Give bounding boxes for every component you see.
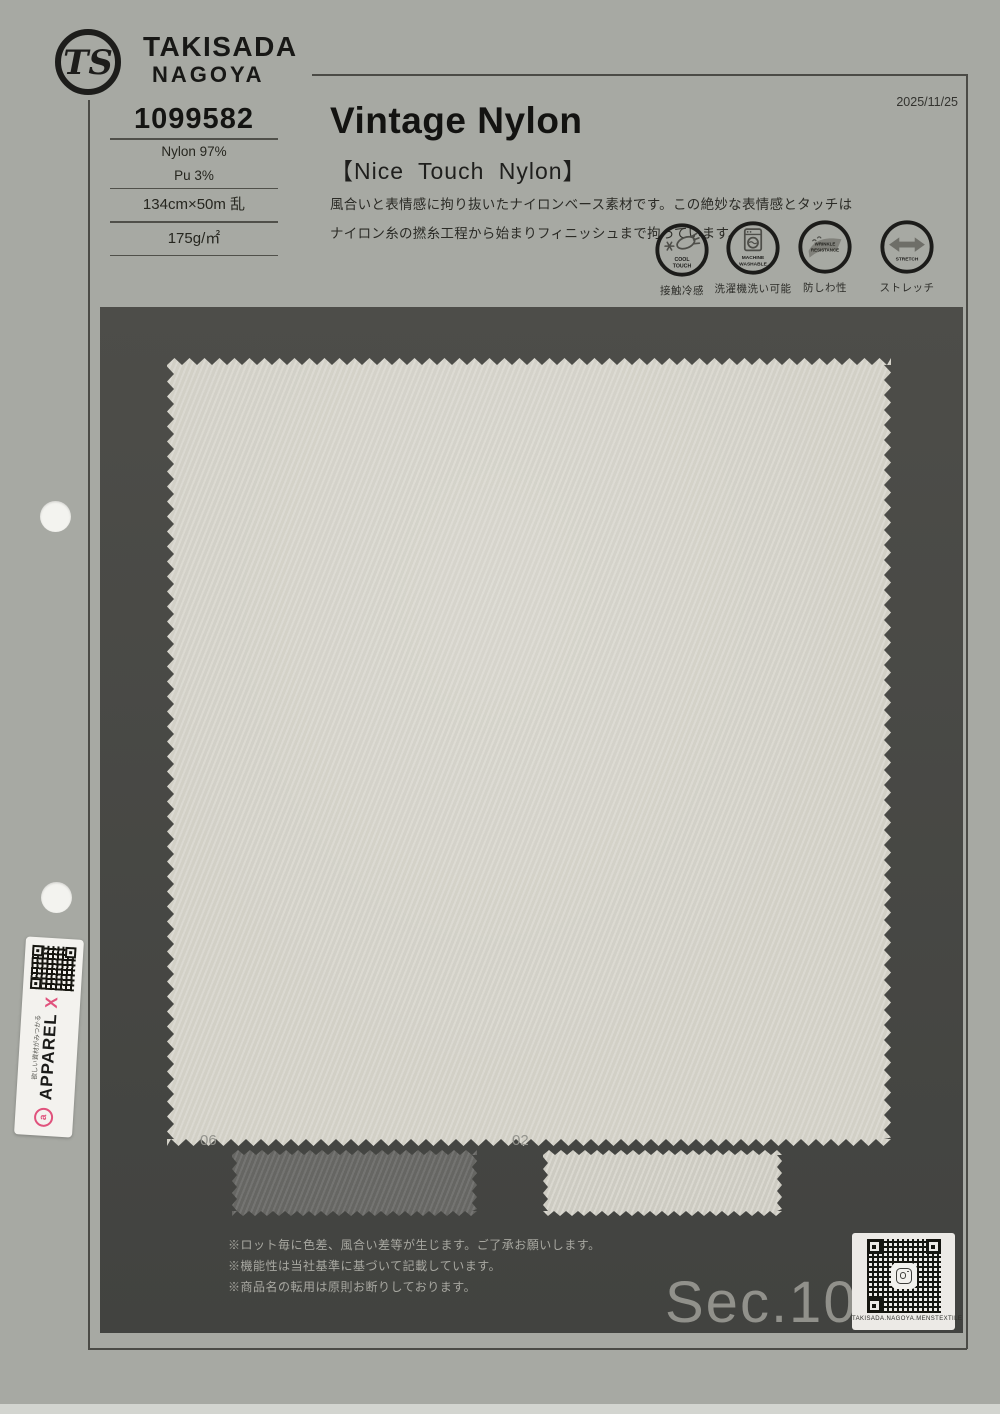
description-line-1: 風合いと表情感に拘り抜いたナイロンベース素材です。この絶妙な表情感とタッチは bbox=[330, 190, 852, 219]
composition-nylon: Nylon 97% bbox=[110, 140, 278, 164]
qr-finder-icon bbox=[65, 947, 77, 959]
qr-finder-icon bbox=[867, 1239, 882, 1254]
qr-finder-icon bbox=[30, 978, 42, 990]
product-info-column: 1099582 Nylon 97% Pu 3% 134cm×50m 乱 175g… bbox=[110, 100, 278, 256]
svg-text:RESISTANCE: RESISTANCE bbox=[811, 247, 839, 252]
note-line-1: ※ロット毎に色差、風合い差等が生じます。ご了承お願いします。 bbox=[228, 1235, 601, 1256]
left-border-line bbox=[88, 100, 90, 1349]
disclaimer-notes: ※ロット毎に色差、風合い差等が生じます。ご了承お願いします。 ※機能性は当社基準… bbox=[228, 1235, 601, 1298]
instagram-account-caption: TAKISADA.NAGOYA.MENSTEXTILE bbox=[852, 1316, 955, 1322]
brand-name-top: TAKISADA bbox=[143, 31, 298, 63]
sample-code-06: 06 bbox=[200, 1132, 217, 1149]
svg-text:WRINKLE: WRINKLE bbox=[815, 242, 836, 247]
svg-text:MACHINE: MACHINE bbox=[742, 255, 765, 261]
instagram-qr-box: TAKISADA.NAGOYA.MENSTEXTILE bbox=[852, 1233, 955, 1330]
apparelx-sticker: APPARELX 欲しい資材がみつかる a bbox=[14, 936, 84, 1137]
product-title: Vintage Nylon bbox=[330, 100, 583, 142]
qr-finder-icon bbox=[867, 1298, 882, 1313]
page-edge bbox=[0, 1404, 1000, 1414]
feature-stretch: STRETCH ストレッチ bbox=[862, 218, 952, 295]
fabric-spec-sheet: TS TAKISADA NAGOYA 1099582 Nylon 97% Pu … bbox=[0, 0, 1000, 1414]
note-line-2: ※機能性は当社基準に基づいて記載しています。 bbox=[228, 1256, 601, 1277]
composition-pu: Pu 3% bbox=[110, 164, 278, 188]
swatch-board: 06 02 ※ロット毎に色差、風合い差等が生じます。ご了承お願いします。 ※機能… bbox=[100, 307, 963, 1333]
fabric-sample-02 bbox=[543, 1150, 782, 1216]
top-border-line bbox=[312, 74, 967, 76]
fabric-sample-06 bbox=[232, 1150, 477, 1216]
feature-label-stretch: ストレッチ bbox=[862, 280, 952, 295]
qr-finder-icon bbox=[926, 1239, 941, 1254]
apparelx-qr-code bbox=[30, 945, 77, 992]
brand-name-bottom: NAGOYA bbox=[152, 62, 265, 88]
qr-finder-icon bbox=[32, 945, 44, 957]
instagram-qr-code bbox=[867, 1239, 941, 1313]
section-number: Sec.10 bbox=[665, 1269, 858, 1336]
product-number: 1099582 bbox=[110, 100, 278, 138]
rule-line bbox=[110, 255, 278, 257]
takisada-ts-logo-icon: TS bbox=[52, 26, 124, 103]
fabric-weight: 175g/㎡ bbox=[110, 223, 278, 255]
svg-text:WASHABLE: WASHABLE bbox=[739, 261, 767, 267]
width-length: 134cm×50m 乱 bbox=[110, 189, 278, 221]
note-line-3: ※商品名の転用は原則お断りしております。 bbox=[228, 1277, 601, 1298]
product-subtitle: 【Nice Touch Nylon】 bbox=[330, 152, 587, 186]
feature-label-wrinkle-resistance: 防しわ性 bbox=[780, 280, 870, 295]
punch-hole bbox=[41, 882, 72, 913]
svg-text:STRETCH: STRETCH bbox=[896, 257, 919, 263]
svg-text:TOUCH: TOUCH bbox=[673, 263, 692, 269]
apparelx-logo-icon: a bbox=[34, 1107, 54, 1127]
bottom-border-line bbox=[88, 1348, 967, 1350]
main-fabric-swatch bbox=[167, 358, 891, 1146]
feature-wrinkle-resistance: WRINKLE RESISTANCE 防しわ性 bbox=[780, 218, 870, 295]
right-border-line bbox=[966, 74, 968, 1349]
stretch-icon: STRETCH bbox=[878, 218, 936, 276]
wrinkle-resistance-icon: WRINKLE RESISTANCE bbox=[796, 218, 854, 276]
sample-code-02: 02 bbox=[512, 1132, 529, 1149]
instagram-icon bbox=[891, 1263, 917, 1289]
machine-washable-icon: MACHINE WASHABLE bbox=[724, 219, 782, 277]
issue-date: 2025/11/25 bbox=[760, 95, 958, 109]
svg-text:COOL: COOL bbox=[674, 257, 690, 263]
svg-text:TS: TS bbox=[63, 43, 113, 83]
punch-hole bbox=[40, 501, 71, 532]
cool-touch-icon: COOL TOUCH bbox=[653, 221, 711, 279]
